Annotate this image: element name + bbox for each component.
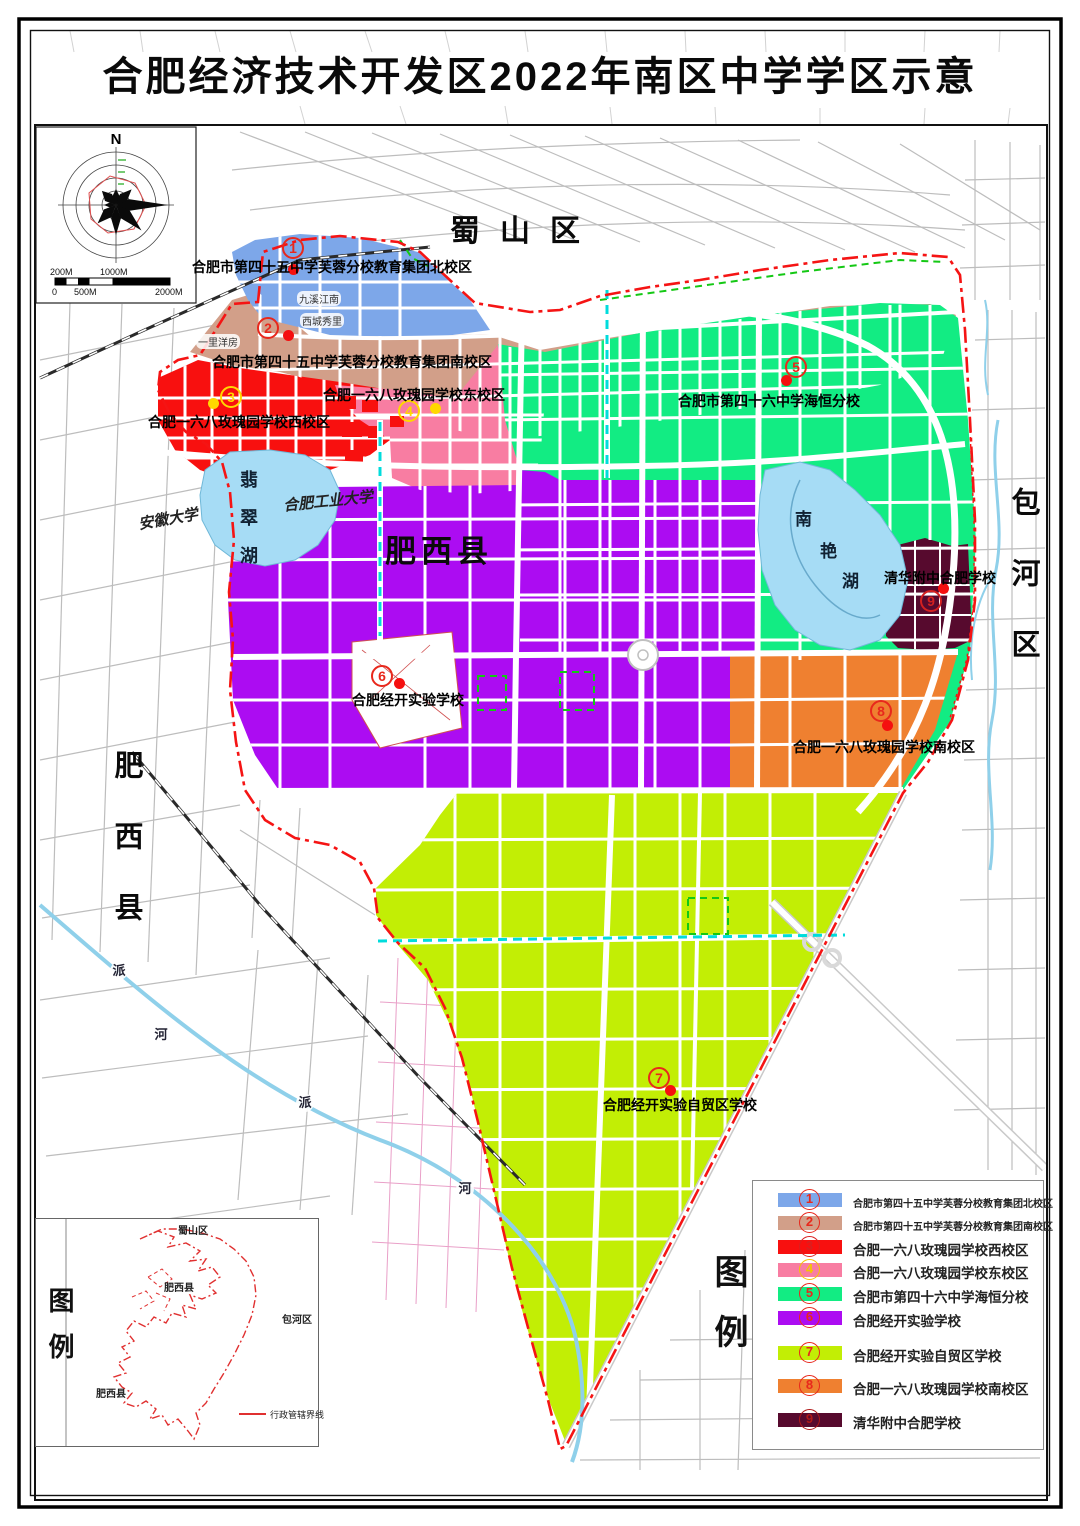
school-marker-6: 6 xyxy=(371,665,393,687)
school-label-1: 合肥市第四十五中学芙蓉分校教育集团北校区 xyxy=(192,257,472,277)
legend-num-2: 2 xyxy=(799,1212,820,1233)
roundabout xyxy=(628,640,658,670)
river-label-he-2: 河 xyxy=(456,1180,474,1198)
compass-north-label: N xyxy=(100,131,132,148)
scale-1000m: 1000M xyxy=(100,267,128,277)
area-label-feixi-center: 肥西县 xyxy=(385,526,493,571)
river-label-pai-1: 派 xyxy=(110,962,128,980)
lake-label-nanyan-3: 湖 xyxy=(842,567,859,592)
legend-label-6: 合肥经开实验学校 xyxy=(853,1310,961,1330)
area-label-feixi-west: 肥西县 xyxy=(105,750,147,963)
school-label-7: 合肥经开实验自贸区学校 xyxy=(603,1095,757,1115)
school-label-6: 合肥经开实验学校 xyxy=(352,690,464,710)
river-label-pai-2: 派 xyxy=(296,1094,314,1112)
legend-label-1: 合肥市第四十五中学芙蓉分校教育集团北校区 xyxy=(853,1195,1053,1210)
scale-0: 0 xyxy=(52,287,57,297)
legend-box: 1 合肥市第四十五中学芙蓉分校教育集团北校区 2 合肥市第四十五中学芙蓉分校教育… xyxy=(752,1180,1044,1450)
legend-label-4: 合肥一六八玫瑰园学校东校区 xyxy=(853,1262,1029,1282)
legend-num-6: 6 xyxy=(799,1307,820,1328)
river-label-he-1: 河 xyxy=(152,1026,170,1044)
poi-label-jiuxi-jiangnan: 九溪江南 xyxy=(297,291,341,306)
school-marker-8: 8 xyxy=(870,700,892,722)
school-dot-2 xyxy=(283,330,294,341)
inset-boundary xyxy=(114,1229,256,1439)
lake-label-nanyan-1: 南 xyxy=(795,505,812,530)
legend-num-8: 8 xyxy=(799,1375,820,1396)
school-dot-8 xyxy=(882,720,893,731)
school-label-2: 合肥市第四十五中学芙蓉分校教育集团南校区 xyxy=(212,352,492,372)
scale-2000m: 2000M xyxy=(155,287,183,297)
school-label-3: 合肥一六八玫瑰园学校西校区 xyxy=(148,412,330,432)
legend-num-7: 7 xyxy=(799,1342,820,1363)
poi-label-yili-yangfang: 一里洋房 xyxy=(196,334,240,349)
legend-num-4: 4 xyxy=(799,1259,820,1280)
inset-legend-title: 图例 xyxy=(42,1287,79,1379)
school-dot-5 xyxy=(781,375,792,386)
school-marker-9: 9 xyxy=(920,590,942,612)
scale-bar xyxy=(55,278,170,285)
school-label-9: 清华附中合肥学校 xyxy=(884,568,996,588)
school-label-4: 合肥一六八玫瑰园学校东校区 xyxy=(323,385,505,405)
inset-label-shushan: 蜀山区 xyxy=(178,1222,208,1237)
legend-num-9: 9 xyxy=(799,1409,820,1430)
scale-200m: 200M xyxy=(50,267,73,277)
map-title: 合肥经济技术开发区2022年南区中学学区示意 xyxy=(0,44,1080,102)
legend-label-5: 合肥市第四十六中学海恒分校 xyxy=(853,1286,1029,1306)
legend-num-5: 5 xyxy=(799,1283,820,1304)
legend-label-3: 合肥一六八玫瑰园学校西校区 xyxy=(853,1239,1029,1259)
school-label-5: 合肥市第四十六中学海恒分校 xyxy=(678,391,860,411)
inset-label-baohe: 包河区 xyxy=(282,1311,312,1326)
area-label-baohe: 包河区 xyxy=(1002,487,1044,700)
area-label-shushan: 蜀山区 xyxy=(450,206,600,250)
school-marker-1: 1 xyxy=(282,237,304,259)
inset-boundary-label: 行政管辖界线 xyxy=(270,1408,324,1421)
scale-500m: 500M xyxy=(74,287,97,297)
school-label-8: 合肥一六八玫瑰园学校南校区 xyxy=(793,737,975,757)
legend-label-2: 合肥市第四十五中学芙蓉分校教育集团南校区 xyxy=(853,1218,1053,1233)
legend-num-3: 3 xyxy=(799,1236,820,1257)
inset-label-feixi: 肥西县 xyxy=(164,1279,194,1294)
lake-label-nanyan-2: 艳 xyxy=(820,537,837,562)
legend-label-7: 合肥经开实验自贸区学校 xyxy=(853,1345,1002,1365)
legend-label-8: 合肥一六八玫瑰园学校南校区 xyxy=(853,1378,1029,1398)
legend-title: 图例 xyxy=(704,1254,753,1374)
school-marker-3: 3 xyxy=(220,386,242,408)
inset-label-feixi-sw: 肥西县 xyxy=(96,1385,126,1400)
school-marker-2: 2 xyxy=(257,317,279,339)
poi-label-xicheng-xiuli: 西城秀里 xyxy=(300,313,344,328)
inset-map: 图例 蜀山区 肥西县 包河区 肥西县 行政管辖界线 xyxy=(35,1218,319,1447)
lake-label-jade: 翡翠湖 xyxy=(235,470,261,584)
legend-label-9: 清华附中合肥学校 xyxy=(853,1412,961,1432)
map-sheet: 合肥经济技术开发区2022年南区中学学区示意 N 200M 1000M 0 50… xyxy=(0,0,1080,1526)
school-dot-3 xyxy=(208,398,219,409)
school-dot-6 xyxy=(394,678,405,689)
legend-num-1: 1 xyxy=(799,1189,820,1210)
